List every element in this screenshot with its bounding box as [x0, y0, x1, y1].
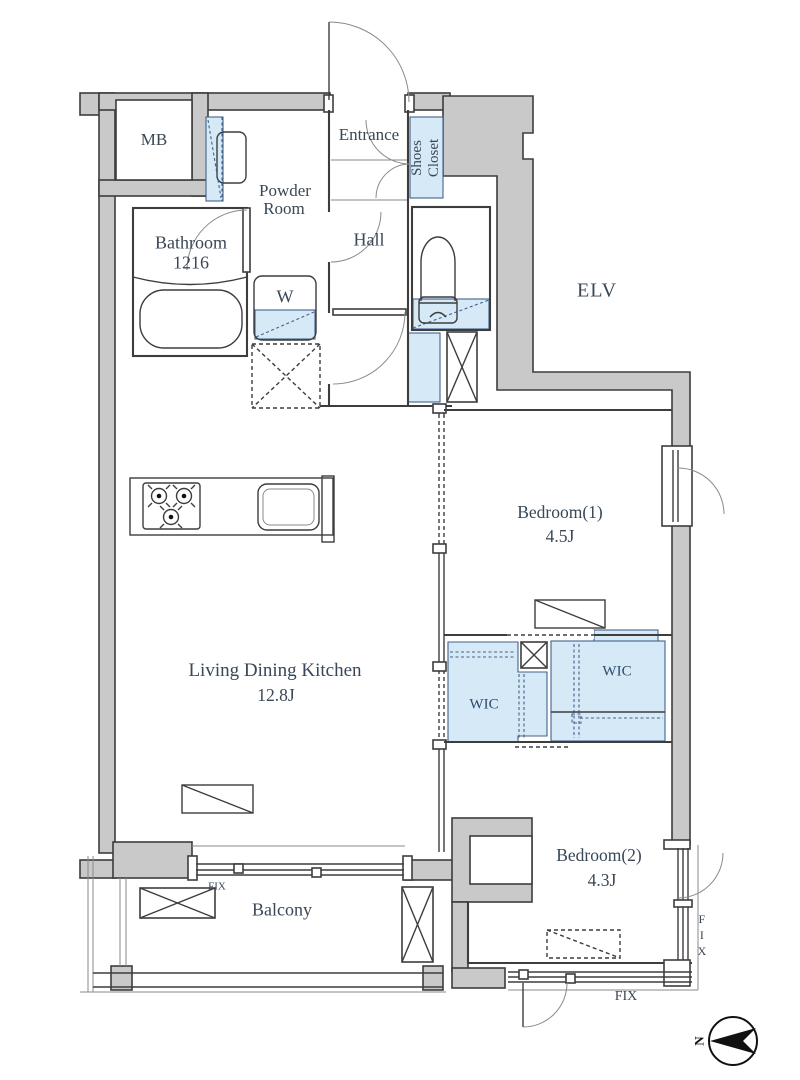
bathroom-outline: [133, 208, 247, 356]
bedroom2-window-jamb-top: [664, 840, 690, 849]
floor-plan-drawing: [0, 0, 800, 1080]
bathroom-door-leaf: [243, 208, 250, 272]
hall-closet: [408, 333, 440, 402]
label-bedroom2-area: 4.3J: [588, 870, 617, 890]
kitchen-counter-end: [322, 476, 334, 542]
entrance-door-arc: [329, 22, 409, 102]
label-bathroom-size: 1216: [173, 253, 209, 274]
label-washer: W: [277, 287, 294, 308]
label-ldk-area: 12.8J: [257, 685, 294, 705]
ldk-door-arc: [333, 312, 405, 384]
south-window-handle-1: [519, 970, 528, 979]
wall-east: [672, 522, 690, 845]
wall-elevator-shaft: [443, 96, 690, 452]
ldk-door-leaf: [333, 309, 406, 315]
label-compass-north: N: [693, 1036, 708, 1045]
elevator-wall-notch: [524, 134, 534, 158]
wic-right-area: [551, 641, 665, 741]
label-powder-room-1: Powder: [259, 181, 311, 201]
wall-mb-bottom: [99, 180, 208, 196]
bedroom1-counter-diagonal: [535, 600, 605, 628]
wall-balcony-left-stub: [80, 860, 116, 878]
wall-pillar-foot: [452, 968, 505, 988]
divider-jamb-1: [433, 404, 446, 413]
shoes-closet-door-arc-2: [376, 164, 410, 198]
kitchen-sink: [258, 484, 319, 530]
label-hall: Hall: [354, 230, 385, 251]
ldk-window-jamb-right: [403, 856, 412, 880]
label-elevator: ELV: [577, 280, 617, 303]
ldk-window-jamb-left: [188, 856, 197, 880]
kitchen-sink-inner: [263, 489, 314, 525]
bedroom2-counter-diagonal: [547, 930, 620, 958]
divider-jamb-2: [433, 544, 446, 553]
entrance-jamb-right: [405, 95, 414, 112]
pillar-block-void: [470, 836, 532, 884]
wall-pillar-stem: [452, 902, 468, 972]
stove-burners: [148, 485, 195, 528]
burner-2-center: [182, 494, 187, 499]
stove: [143, 483, 200, 529]
ldk-counter-diagonal: [182, 785, 253, 813]
label-fix-south: FIX: [615, 989, 638, 1005]
label-bedroom1: Bedroom(1): [517, 502, 603, 522]
label-powder-room-2: Room: [263, 199, 305, 219]
label-shoes-closet: Shoes Closet: [409, 139, 444, 177]
bedroom2-east-door-arc: [678, 853, 723, 898]
label-bedroom1-area: 4.5J: [546, 526, 575, 546]
floor-plan: MB Powder Room Entrance Shoes Closet Bat…: [0, 0, 800, 1080]
washer-pan: [255, 310, 315, 339]
burner-3-center: [169, 515, 174, 520]
ldk-window-handle-1: [234, 864, 243, 873]
label-wic-right: WIC: [602, 663, 631, 680]
label-shoes-closet-1: Shoes: [409, 139, 426, 177]
label-shoes-closet-2: Closet: [426, 139, 443, 177]
bathtub: [140, 290, 242, 348]
label-entrance: Entrance: [339, 125, 399, 145]
label-bedroom2: Bedroom(2): [556, 845, 642, 865]
label-fix-balcony: FIX: [208, 881, 226, 894]
bathtub-deck-curve: [133, 277, 247, 285]
ldk-window-handle-2: [312, 868, 321, 877]
label-mb: MB: [141, 130, 167, 150]
label-wic-left: WIC: [469, 696, 498, 713]
label-fix-east: FIX: [694, 912, 708, 960]
wall-ldk-south-left: [113, 842, 192, 878]
wall-left: [99, 95, 115, 853]
bedroom1-window-frame: [662, 446, 692, 526]
bedroom2-east-window-divider: [674, 900, 692, 907]
label-bathroom: Bathroom: [155, 233, 227, 254]
toilet-bowl: [421, 237, 455, 301]
south-window-handle-2: [566, 974, 575, 983]
divider-jamb-3: [433, 662, 446, 671]
burner-1-center: [157, 494, 162, 499]
label-ldk: Living Dining Kitchen: [188, 660, 361, 682]
label-balcony: Balcony: [252, 900, 312, 921]
